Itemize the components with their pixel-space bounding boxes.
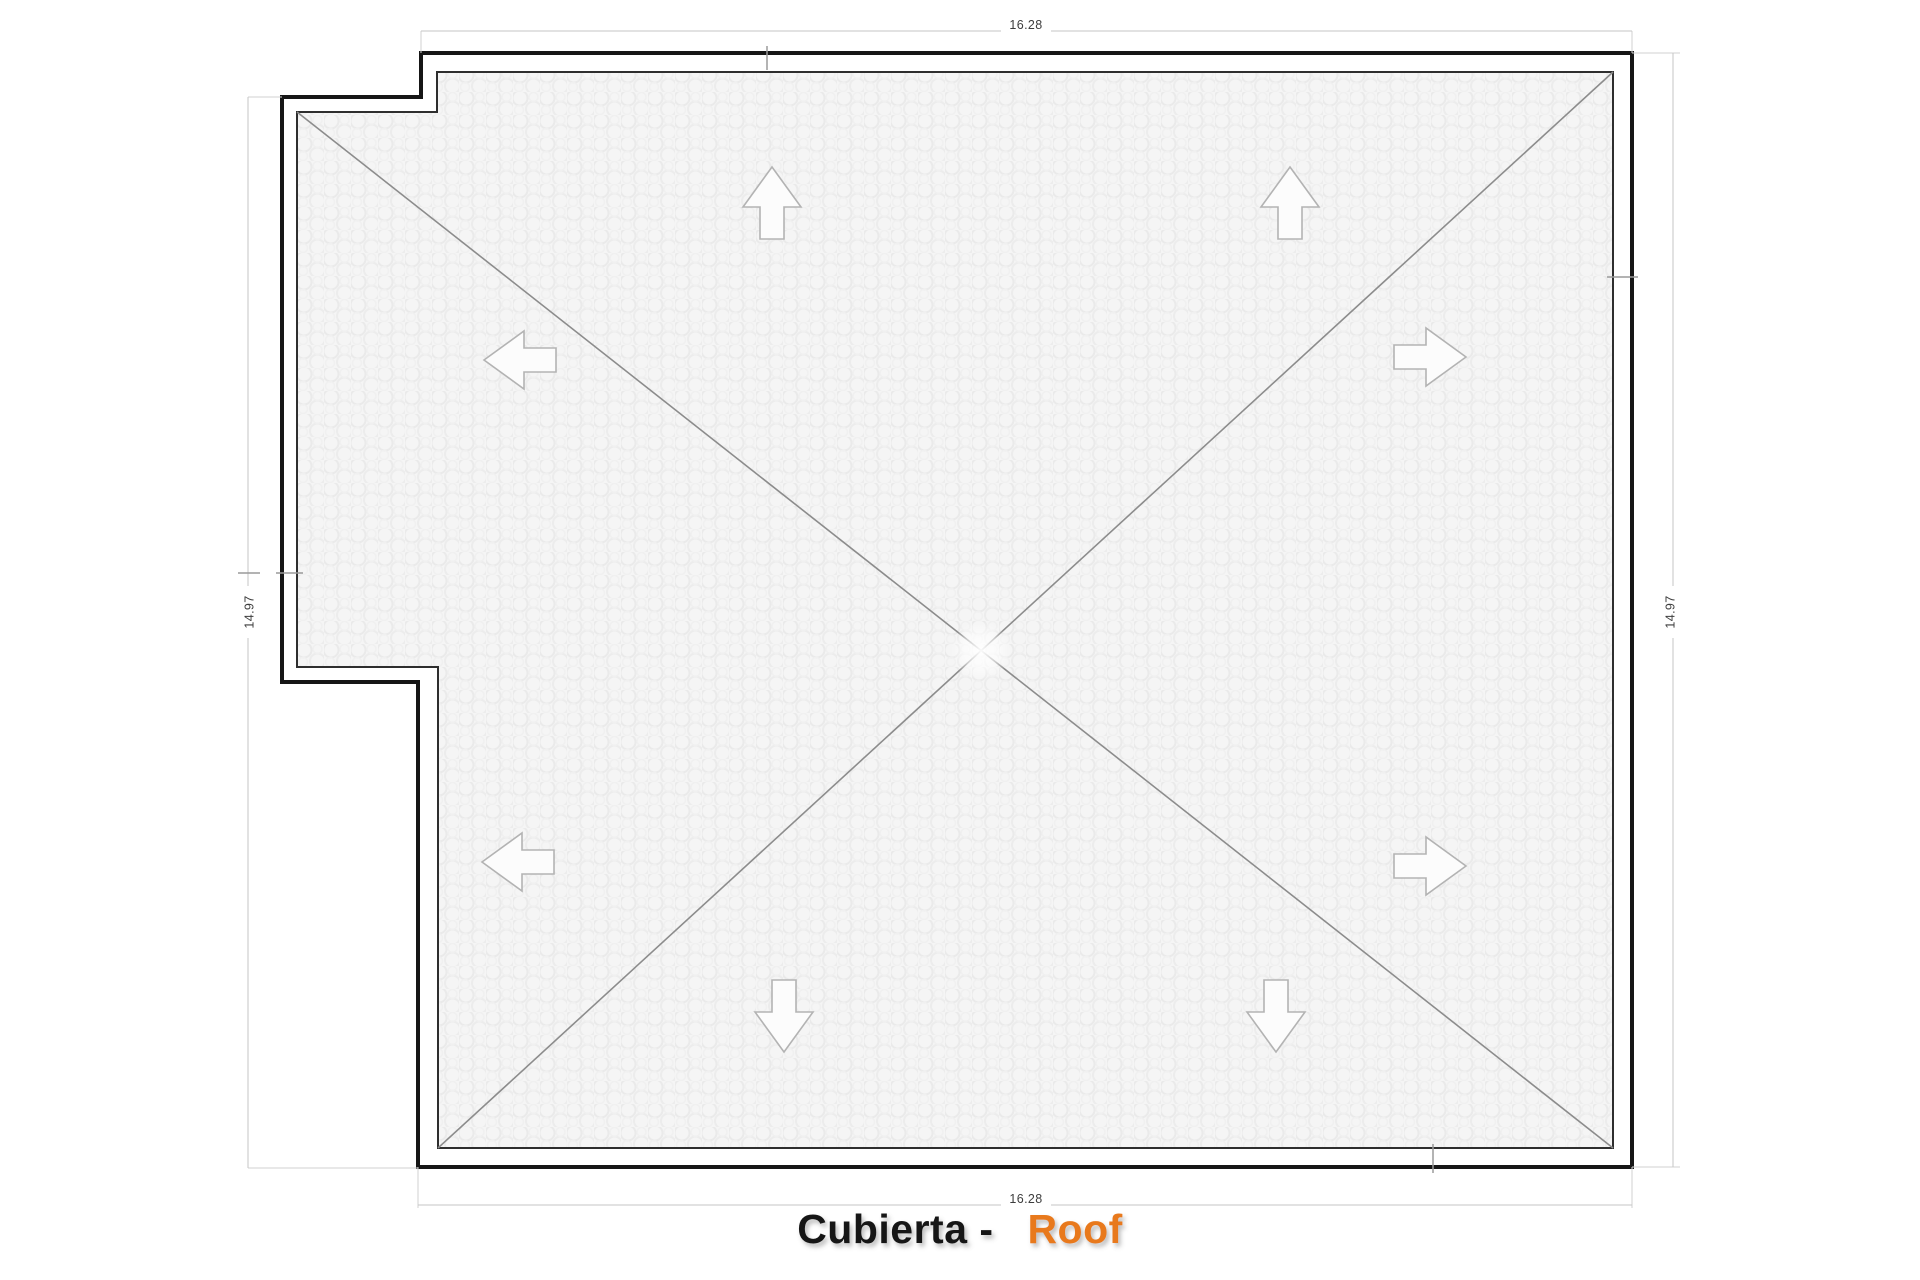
dimension-label-left: 14.97 — [241, 586, 257, 638]
drawing-title-english: Roof — [1027, 1206, 1122, 1252]
drawing-title: Cubierta - Roof — [797, 1206, 1123, 1252]
roof-apex-highlight — [951, 621, 1011, 681]
roof-surface — [297, 72, 1613, 1148]
roof-plan-drawing: 16.28 16.28 14.97 14.97 — [0, 0, 1920, 1280]
dimension-value-right: 14.97 — [1664, 595, 1678, 628]
dimension-label-right: 14.97 — [1662, 586, 1678, 638]
dimension-label-bottom: 16.28 — [1001, 1191, 1051, 1206]
dimension-label-top: 16.28 — [1001, 18, 1051, 33]
dimension-value-left: 14.97 — [243, 595, 257, 628]
dimension-value-bottom: 16.28 — [1009, 1192, 1042, 1206]
roof-plan-canvas: 16.28 16.28 14.97 14.97 — [0, 0, 1920, 1280]
dimension-value-top: 16.28 — [1009, 18, 1042, 32]
drawing-title-spanish: Cubierta - — [797, 1206, 993, 1252]
